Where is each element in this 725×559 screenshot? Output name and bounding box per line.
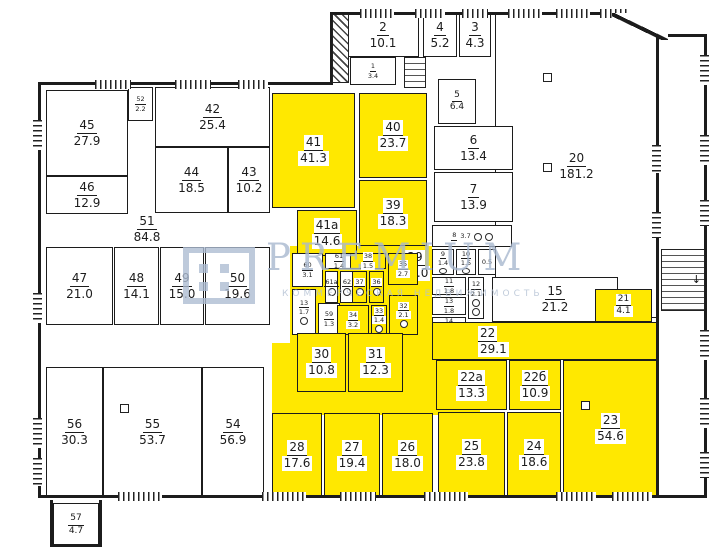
column-mark xyxy=(120,404,129,413)
room-number: 6 xyxy=(468,133,480,149)
room-area: 84.8 xyxy=(134,230,161,245)
wall-segment xyxy=(99,500,102,547)
room-number: 33 xyxy=(374,307,384,316)
room-area: 1.8 xyxy=(444,307,454,315)
room-8: 83.7 xyxy=(432,225,512,247)
room-area: 2.1 xyxy=(471,290,481,298)
room-0.5: 0.5 xyxy=(478,249,496,275)
room-61а: 61а xyxy=(325,271,338,303)
window-mark xyxy=(508,9,542,18)
room-area: 19.6 xyxy=(224,287,251,302)
room-number: 32 xyxy=(398,302,408,311)
window-mark xyxy=(415,9,445,18)
room-24: 2418.6 xyxy=(507,412,561,497)
room-number: 31 xyxy=(366,347,385,363)
column-mark xyxy=(543,163,552,172)
window-mark xyxy=(462,9,488,18)
room-number: 8 xyxy=(451,231,457,240)
room-number: 3 xyxy=(469,20,481,36)
window-mark xyxy=(238,80,268,89)
room-6: 613.4 xyxy=(434,126,513,170)
window-mark xyxy=(118,492,162,501)
wall-segment xyxy=(664,34,707,37)
room-7: 713.9 xyxy=(434,172,513,222)
room-1: 13.4 xyxy=(350,57,396,85)
plan-geometry: 20181.2210.145.234.313.456.4613.4713.945… xyxy=(0,0,725,559)
room-number: 61а xyxy=(324,278,338,287)
room-48: 4814.1 xyxy=(114,247,159,325)
room-area: 54.6 xyxy=(595,429,626,444)
toilet-fixture-icon xyxy=(328,288,336,296)
room-area: 1.5 xyxy=(461,259,471,267)
room-area: 10.2 xyxy=(236,181,263,196)
toilet-fixture-icon xyxy=(474,233,482,241)
room-number: 55 xyxy=(143,417,162,433)
room-10: 101.5 xyxy=(456,249,476,275)
room-number: 43 xyxy=(239,165,258,181)
room-area: 5.2 xyxy=(430,36,449,51)
toilet-fixture-icon xyxy=(472,299,480,307)
room-number: 24 xyxy=(524,439,543,455)
room-number: 13 xyxy=(444,297,454,306)
room-22б: 22б10.9 xyxy=(509,360,561,410)
room-41: 4141.3 xyxy=(272,93,355,208)
room-5: 56.4 xyxy=(438,79,476,124)
window-mark xyxy=(700,200,709,226)
toilet-fixture-icon xyxy=(472,308,480,316)
room-area: 1.4 xyxy=(372,316,386,324)
room-number: 10 xyxy=(461,250,471,259)
room-number: 2 xyxy=(377,20,389,36)
room-38: 381.5 xyxy=(350,253,386,269)
room-area: 13.4 xyxy=(460,149,487,164)
room-number: 42 xyxy=(203,102,222,118)
stairs xyxy=(332,14,349,83)
window-mark xyxy=(262,492,306,501)
room-area: 13.3 xyxy=(456,386,487,401)
window-mark xyxy=(556,9,590,18)
room-44: 4418.5 xyxy=(155,147,228,213)
column-mark xyxy=(543,73,552,82)
toilet-fixture-icon xyxy=(300,317,308,325)
window-mark xyxy=(33,458,42,486)
room-61: 611.4 xyxy=(325,253,353,269)
window-mark xyxy=(33,293,42,323)
wall-segment xyxy=(50,544,102,547)
room-37: 37 xyxy=(352,271,367,303)
room-number: 23 xyxy=(601,413,620,429)
window-mark xyxy=(556,492,596,501)
toilet-fixture-icon xyxy=(485,233,493,241)
room-45: 4527.9 xyxy=(46,90,128,176)
room-area: 41.3 xyxy=(298,151,329,166)
room-number: 41 xyxy=(304,135,323,151)
room-number: 45 xyxy=(77,118,96,134)
window-mark xyxy=(652,212,661,238)
room-area: 15.0 xyxy=(169,287,196,302)
room-area: 6.4 xyxy=(450,102,464,113)
room-number: 44 xyxy=(182,165,201,181)
room-area: 3.4 xyxy=(368,72,378,80)
room-13: 131.8 xyxy=(432,297,466,315)
window-mark xyxy=(700,135,709,165)
room-number: 12 xyxy=(471,280,481,289)
room-54: 5456.9 xyxy=(202,367,264,497)
room-area: 18.6 xyxy=(519,455,550,470)
room-33: 331.4 xyxy=(371,305,387,335)
room-area: 1.7 xyxy=(299,308,309,316)
room-number: 60 xyxy=(302,261,312,270)
room-46: 4612.9 xyxy=(46,176,128,214)
room-number: 27 xyxy=(342,440,361,456)
room-9: 91.4 xyxy=(432,249,454,275)
room-number: 40 xyxy=(383,120,402,136)
room-number: 36 xyxy=(371,278,381,287)
toilet-fixture-icon xyxy=(343,288,351,296)
room-number: 48 xyxy=(127,271,146,287)
room-area: 4.1 xyxy=(614,306,632,317)
room-56: 5630.3 xyxy=(46,367,103,497)
window-mark xyxy=(33,418,42,448)
room-area: 14.6 xyxy=(312,234,343,249)
window-mark xyxy=(652,145,661,173)
room-number: 59 xyxy=(324,310,334,319)
room-number: 46 xyxy=(77,180,96,196)
room-13: 131.7 xyxy=(292,289,316,335)
room-number: 13 xyxy=(299,299,309,308)
window-mark xyxy=(700,330,709,360)
room-number: 22б xyxy=(522,370,549,386)
room-number: 37 xyxy=(354,278,364,287)
room-number: 26 xyxy=(398,440,417,456)
room-3: 34.3 xyxy=(459,14,491,57)
room-number: 1 xyxy=(370,62,376,71)
room-12: 122.1 xyxy=(468,277,484,319)
room-number: 9 xyxy=(440,250,446,259)
room-number: 56 xyxy=(65,417,84,433)
room-number: 49 xyxy=(172,271,191,287)
chamfered-corner xyxy=(612,13,668,40)
room-area: 29.1 xyxy=(478,342,509,357)
room-area: 12.3 xyxy=(360,363,391,378)
room-55: 5553.7 xyxy=(103,367,202,497)
room-area: 10.9 xyxy=(520,386,551,401)
room-area: 1.8 xyxy=(444,287,454,295)
room-number: 51 xyxy=(137,214,156,230)
room-34: 343.2 xyxy=(337,305,369,335)
room-31: 3112.3 xyxy=(348,333,403,392)
room-number: 15 xyxy=(545,284,564,300)
room-area: 25.4 xyxy=(199,118,226,133)
room-4: 45.2 xyxy=(423,14,457,57)
room-57: 574.7 xyxy=(53,503,99,547)
room-28: 2817.6 xyxy=(272,413,322,497)
room-area: 18.5 xyxy=(178,181,205,196)
room-number: 62 xyxy=(342,278,352,287)
room-number: 41а xyxy=(314,218,341,234)
room-area: 1.4 xyxy=(334,262,344,270)
room-area: 14.1 xyxy=(123,287,150,302)
room-area: 3.7 xyxy=(460,232,470,240)
toilet-fixture-icon xyxy=(462,268,470,274)
room-number: 7 xyxy=(468,182,480,198)
room-number: 47 xyxy=(70,271,89,287)
room-number: 39 xyxy=(383,198,402,214)
room-area: 13.9 xyxy=(460,198,487,213)
room-area: 27.9 xyxy=(74,134,101,149)
room-area: 10.8 xyxy=(306,363,337,378)
room-number: 22 xyxy=(478,326,497,342)
room-21: 214.1 xyxy=(595,289,652,322)
room-number: 25 xyxy=(462,439,481,455)
room-22: 2229.1 xyxy=(432,322,658,360)
wall-segment xyxy=(656,14,659,497)
room-36: 36 xyxy=(369,271,384,303)
room-area: 4.3 xyxy=(465,36,484,51)
toilet-fixture-icon xyxy=(375,325,383,333)
room-area: 10.1 xyxy=(370,36,397,51)
room-area: 1.3 xyxy=(324,320,334,328)
toilet-fixture-icon xyxy=(439,268,447,274)
room-23: 2354.6 xyxy=(563,360,658,497)
window-mark xyxy=(612,492,652,501)
room-50: 5019.6 xyxy=(205,247,270,325)
room-30: 3010.8 xyxy=(297,333,346,392)
room-area: 2.1 xyxy=(396,311,410,319)
window-mark xyxy=(700,398,709,428)
room-49: 4915.0 xyxy=(160,247,204,325)
room-number: 5 xyxy=(452,90,462,102)
room-area: 12.9 xyxy=(74,196,101,211)
room-number: 35 xyxy=(398,260,408,269)
stairs: ↓ xyxy=(661,249,705,311)
room-47: 4721.0 xyxy=(46,247,113,325)
room-25: 2523.8 xyxy=(438,412,505,497)
room-22а: 22а13.3 xyxy=(436,360,507,410)
room-number: 61 xyxy=(334,252,344,261)
toilet-fixture-icon xyxy=(400,320,408,328)
room-area: 1.4 xyxy=(438,259,448,267)
room-area: 56.9 xyxy=(220,433,247,448)
stairs xyxy=(404,57,426,88)
room-number: 34 xyxy=(348,311,358,320)
room-number: 11 xyxy=(444,277,454,286)
room-11: 111.8 xyxy=(432,277,466,295)
room-20: 20181.2 xyxy=(495,14,658,318)
room-area: 2.2 xyxy=(135,105,145,113)
room-number: 20 xyxy=(567,151,586,167)
room-number: 50 xyxy=(228,271,247,287)
room-number: 38 xyxy=(363,252,373,261)
stairs-down-arrow-icon: ↓ xyxy=(692,273,701,286)
room-area: 1.5 xyxy=(361,262,375,270)
wall-segment xyxy=(50,500,53,547)
room-number: 4 xyxy=(434,20,446,36)
floor-plan: 20181.2210.145.234.313.456.4613.4713.945… xyxy=(0,0,725,559)
room-42: 4225.4 xyxy=(155,87,270,147)
room-area: 181.2 xyxy=(559,167,593,182)
room-area: 21.0 xyxy=(66,287,93,302)
column-mark xyxy=(581,401,590,410)
room-area: 23.7 xyxy=(378,136,409,151)
room-area: 21.2 xyxy=(542,300,569,315)
toilet-fixture-icon xyxy=(356,288,364,296)
room-area: 18.0 xyxy=(392,456,423,471)
window-mark xyxy=(360,9,394,18)
room-area: 30.3 xyxy=(61,433,88,448)
window-mark xyxy=(175,80,211,89)
room-area: 53.7 xyxy=(139,433,166,448)
room-area: 3.1 xyxy=(302,271,312,279)
room-2: 210.1 xyxy=(347,14,419,57)
toilet-fixture-icon xyxy=(373,288,381,296)
room-51: 5184.8 xyxy=(112,212,182,246)
room-41а: 41а14.6 xyxy=(297,210,357,256)
window-mark xyxy=(95,80,131,89)
room-area: 23.8 xyxy=(456,455,487,470)
room-number: 54 xyxy=(223,417,242,433)
room-39: 3918.3 xyxy=(359,180,427,246)
room-35: 352.7 xyxy=(388,253,418,285)
room-number: 57 xyxy=(68,513,83,525)
room-number: 21 xyxy=(616,294,631,306)
window-mark xyxy=(340,492,376,501)
room-60: 603.1 xyxy=(292,253,323,287)
room-number: 22а xyxy=(458,370,485,386)
room-number: 52 xyxy=(135,95,145,104)
room-27: 2719.4 xyxy=(324,413,380,497)
room-area: 19.4 xyxy=(337,456,368,471)
window-mark xyxy=(33,120,42,150)
window-mark xyxy=(700,452,709,478)
room-40: 4023.7 xyxy=(359,93,427,178)
room-26: 2618.0 xyxy=(382,413,433,497)
window-mark xyxy=(700,55,709,85)
room-43: 4310.2 xyxy=(228,147,270,213)
window-mark xyxy=(424,492,468,501)
room-number: 28 xyxy=(287,440,306,456)
room-number: 30 xyxy=(312,347,331,363)
room-area: 18.3 xyxy=(378,214,409,229)
room-32: 322.1 xyxy=(389,295,418,335)
room-area: 3.2 xyxy=(346,321,360,329)
room-area: 2.7 xyxy=(396,270,410,278)
room-area: 17.6 xyxy=(282,456,313,471)
room-area: 0.5 xyxy=(482,258,492,266)
room-52: 522.2 xyxy=(128,87,153,121)
room-area: 4.7 xyxy=(69,526,83,537)
